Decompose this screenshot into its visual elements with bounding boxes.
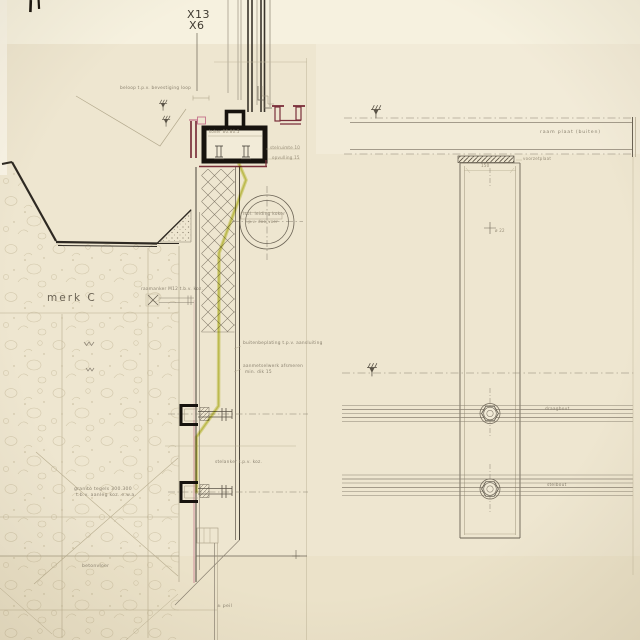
note-peil: ± peil [217, 605, 232, 610]
note-raamanker: raamanker M12 t.b.v. koz. [141, 288, 203, 292]
grid-ref-x6: X6 [189, 20, 205, 31]
note-granito2: t.b.v. aanleg koz. e.w.a. [76, 494, 136, 499]
note-buitenbeplating: buitenbeplating t.p.v. aansluiting [243, 342, 323, 346]
mark-label: merk C [47, 293, 97, 304]
note-betonvloer: betonvloer [82, 565, 109, 570]
note-opvulling: opvulling 15 [272, 156, 300, 160]
note-stelbout: stelbout [547, 484, 567, 488]
dim-dia22: ø 22 [495, 229, 505, 233]
note-draagbout: draagbout [545, 408, 570, 412]
note-beloop: beloop t.p.v. bevestiging loop [120, 87, 191, 91]
note-stelruimte: stelruimte 10 [270, 146, 300, 150]
note-koker: koker 80.80.5 [209, 130, 240, 134]
note-aanmetselwerk1: aanmetselwerk afsmeren [243, 365, 303, 369]
dim-150: 150 [481, 164, 489, 168]
note-voorzetplaat: voorzetplaat [523, 157, 551, 161]
note-stelanker: stelanker t.p.v. koz. [215, 461, 262, 465]
blueprint-scan: X13 X6 merk C beloop t.p.v. bevestiging … [0, 0, 640, 640]
scan-vignette [0, 0, 640, 640]
note-duct-line1: isol. leiding koker [243, 213, 285, 217]
note-raamplaat: raam plaat (buiten) [540, 131, 601, 136]
note-duct-line2: t.p.v. doorvoer [245, 220, 278, 224]
note-granito1: granito tegels 300.300 [74, 488, 132, 493]
note-aanmetselwerk2: min. dik 15 [245, 371, 272, 375]
drawing-linework [0, 0, 640, 640]
